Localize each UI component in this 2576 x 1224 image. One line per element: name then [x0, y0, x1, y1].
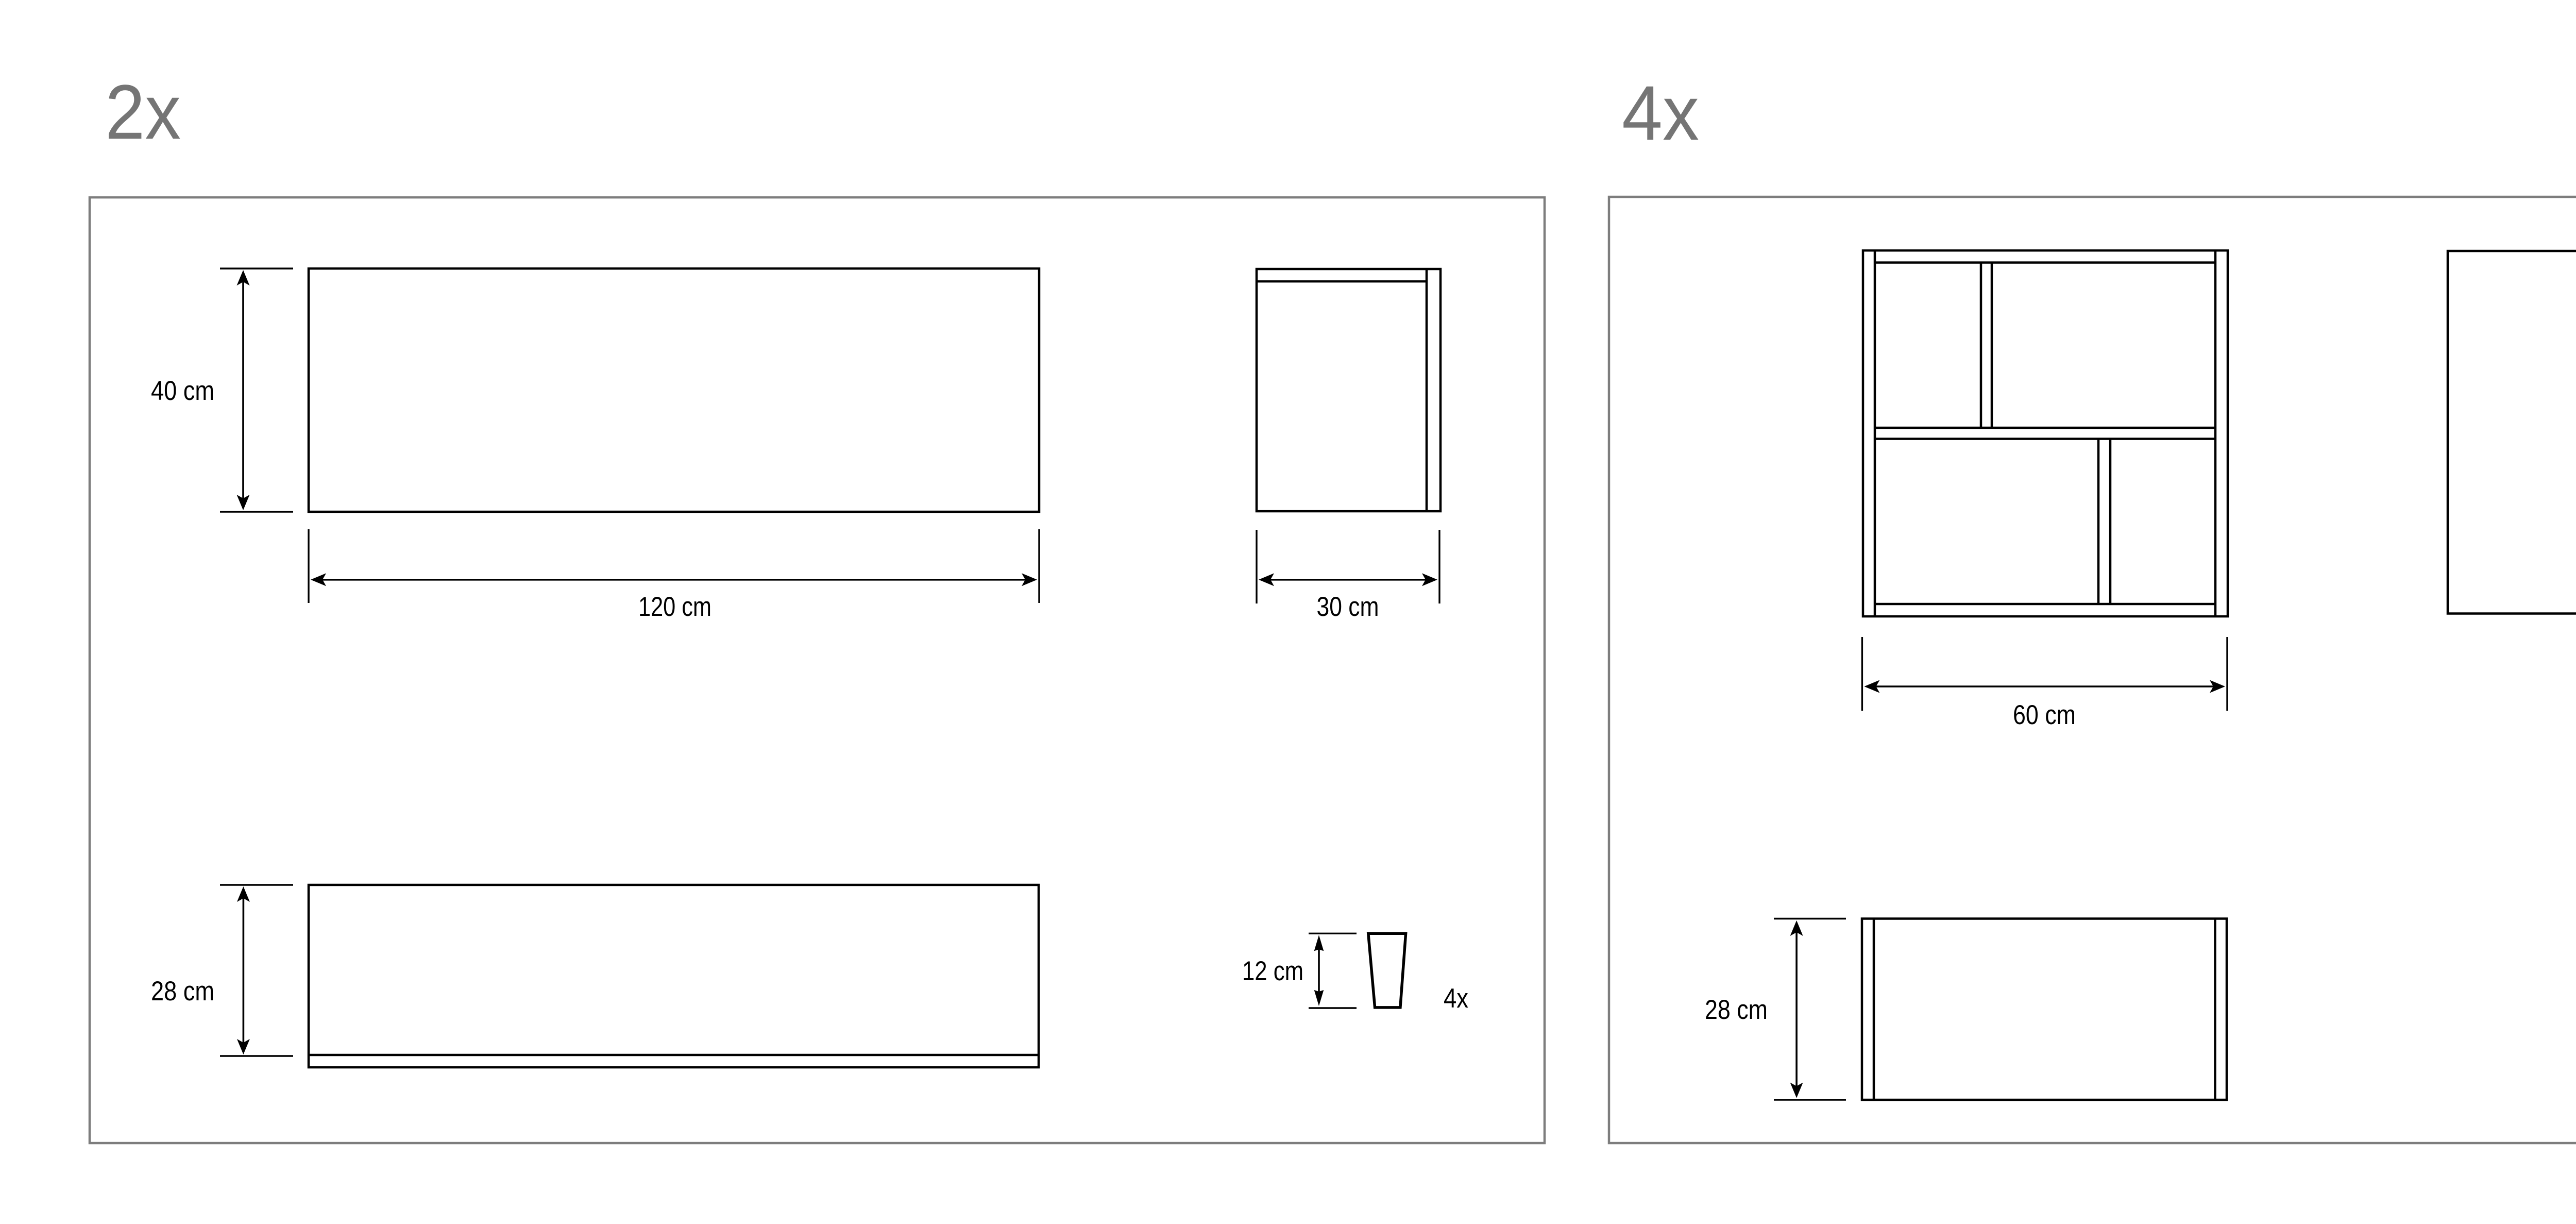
svg-text:30 cm: 30 cm [1317, 592, 1379, 622]
svg-text:40 cm: 40 cm [151, 376, 214, 406]
svg-text:4x: 4x [1622, 70, 1699, 156]
svg-text:28 cm: 28 cm [151, 976, 214, 1007]
svg-text:60 cm: 60 cm [2013, 700, 2076, 730]
svg-text:12 cm: 12 cm [1242, 956, 1303, 986]
svg-text:28 cm: 28 cm [1705, 995, 1768, 1025]
svg-text:2x: 2x [105, 69, 181, 155]
svg-text:4x: 4x [1444, 983, 1468, 1014]
svg-text:120 cm: 120 cm [638, 592, 711, 622]
